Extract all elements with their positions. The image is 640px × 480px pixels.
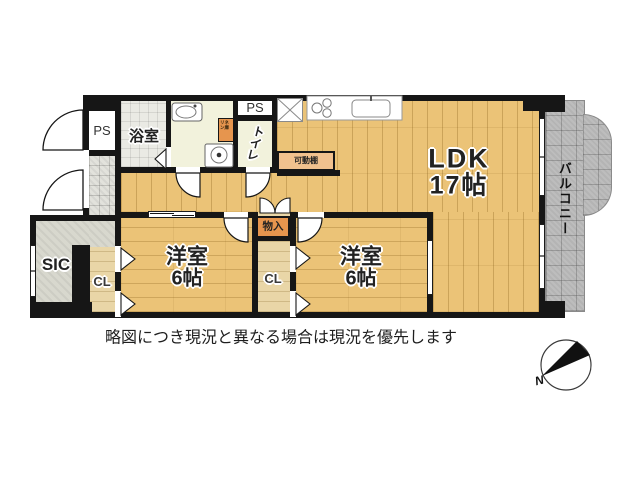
wall-segment	[270, 167, 277, 173]
bath-label: 浴室	[129, 129, 159, 145]
ps-left-label: PS	[93, 124, 110, 138]
floor-plan: リネン庫	[0, 0, 640, 480]
wall-segment	[200, 167, 246, 173]
wall-segment	[196, 212, 224, 218]
compass-icon: N	[531, 336, 603, 396]
closet2-opening	[290, 291, 296, 317]
bedroom2-name: 洋室	[340, 246, 382, 268]
bedroom1-door-opening	[224, 212, 248, 218]
closet1-label: CL	[93, 275, 110, 289]
closet2-opening	[290, 246, 296, 272]
ldk-label: LDK 17帖	[428, 145, 490, 200]
balcony-bay-curve	[583, 114, 612, 216]
closet2-label: CL	[264, 272, 281, 286]
wall-segment	[545, 301, 565, 318]
wall-segment	[83, 95, 545, 101]
bedroom1-label: 洋室 6帖	[166, 246, 208, 289]
hallway-floor	[121, 173, 296, 212]
ps-right-label: PS	[246, 101, 263, 115]
wall-segment	[539, 196, 545, 224]
sic-label: SIC	[42, 256, 70, 274]
ldk-size: 17帖	[428, 173, 490, 199]
closet1-opening	[115, 246, 121, 272]
wall-segment	[233, 115, 277, 121]
wall-segment	[30, 215, 121, 221]
entrance-opening	[83, 150, 89, 208]
compass-needle	[542, 341, 590, 376]
ldk-name: LDK	[428, 145, 490, 173]
linen-cabinet: リネン庫	[218, 118, 234, 142]
wall-segment	[30, 312, 545, 318]
compass-circle	[541, 340, 591, 390]
toilet-door-opening	[246, 167, 270, 173]
bedroom2-door-opening	[298, 212, 324, 218]
bedroom1-name: 洋室	[166, 246, 208, 268]
bedroom1-sliding-door	[148, 211, 196, 218]
caption: 略図につき現況と異なる場合は現況を優先します	[105, 331, 457, 348]
wall-segment	[545, 95, 565, 112]
window-balcony-lower	[539, 224, 545, 289]
closet1-opening	[115, 291, 121, 317]
wall-segment	[166, 101, 171, 147]
entrance-tile	[89, 153, 115, 216]
wall-segment	[72, 245, 90, 312]
wall-segment	[115, 167, 176, 173]
wall-segment	[115, 212, 148, 218]
entrance-door-arc	[43, 110, 83, 150]
bedroom2-size: 6帖	[340, 269, 382, 290]
ldk-floor-lower	[433, 212, 539, 312]
washroom-door-opening	[176, 167, 200, 173]
bedroom2-label: 洋室 6帖	[340, 246, 382, 289]
wall-segment	[30, 215, 36, 245]
wall-segment	[83, 95, 89, 150]
compass-north-label: N	[533, 372, 545, 388]
wall-segment	[89, 150, 115, 156]
linen-label: リネン庫	[220, 120, 229, 130]
bedroom2-sliding-door	[427, 240, 433, 295]
bedroom1-size: 6帖	[166, 269, 208, 290]
wall-segment	[233, 95, 238, 117]
sic-floor-ext	[89, 221, 115, 247]
balcony-label: バルコニー	[557, 162, 571, 237]
entrance-door-arc	[43, 170, 83, 210]
movable-shelf-label: 可動棚	[294, 157, 318, 165]
storage-label: 物入	[263, 221, 284, 232]
window-left	[30, 245, 36, 297]
window-balcony-upper	[539, 118, 545, 196]
bath-door-opening	[166, 147, 171, 167]
wall-segment	[115, 101, 121, 312]
